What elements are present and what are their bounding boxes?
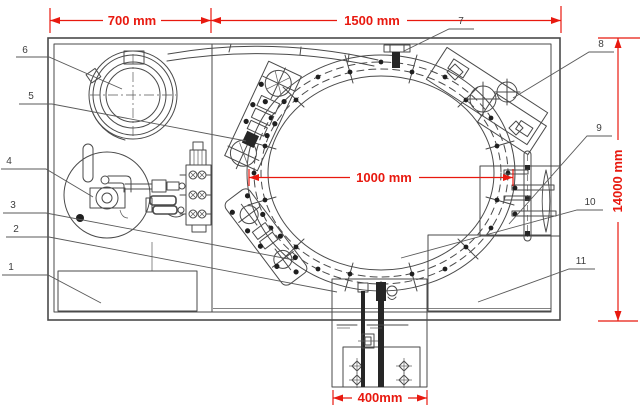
sensor-dot — [76, 214, 84, 222]
sub-panel-right — [428, 235, 551, 311]
callout-10: 10 — [401, 197, 603, 258]
callout-11-label: 11 — [576, 256, 587, 267]
bottom-mount-unit — [332, 279, 427, 388]
callout-11: 11 — [478, 256, 595, 302]
callout-3-label: 3 — [10, 200, 16, 211]
dimension-14000: 14000 mm — [598, 38, 640, 321]
dimension-700-label: 700 mm — [108, 13, 156, 28]
callout-8-label: 8 — [598, 39, 604, 50]
callout-6: 6 — [16, 45, 122, 89]
machine-frame — [48, 38, 560, 320]
callout-10-label: 10 — [584, 197, 596, 208]
dimension-400: 400mm — [333, 390, 427, 405]
dimension-400-label: 400mm — [358, 390, 403, 405]
callout-6-label: 6 — [22, 45, 28, 56]
drawing-canvas: 700 mm 1500 mm 1000 mm 14000 mm 400mm — [0, 0, 640, 405]
callout-2-label: 2 — [13, 224, 19, 235]
assembly-drawing: 700 mm 1500 mm 1000 mm 14000 mm 400mm — [0, 0, 640, 405]
callout-1-label: 1 — [8, 262, 14, 273]
callout-3: 3 — [3, 200, 294, 260]
valve-row — [180, 171, 211, 179]
callout-9-label: 9 — [596, 123, 602, 134]
dimension-1500: 1500 mm — [211, 6, 561, 33]
bowl-feeder — [86, 51, 177, 140]
valve-row — [180, 191, 211, 199]
callout-1: 1 — [2, 262, 101, 303]
valve-row — [180, 210, 211, 218]
station-upper-left — [221, 60, 302, 177]
dimension-700: 700 mm — [50, 8, 211, 33]
callout-5-label: 5 — [28, 91, 34, 102]
callout-4-label: 4 — [6, 156, 12, 167]
dimension-1000: 1000 mm — [249, 169, 513, 186]
callout-7-label: 7 — [458, 16, 464, 27]
dimension-14000-label: 14000 mm — [610, 150, 625, 213]
dimension-1000-label: 1000 mm — [356, 170, 412, 185]
callout-8: 8 — [513, 39, 614, 98]
top-clamp — [384, 45, 410, 68]
dimension-1500-label: 1500 mm — [344, 13, 400, 28]
callout-7: 7 — [404, 16, 474, 51]
